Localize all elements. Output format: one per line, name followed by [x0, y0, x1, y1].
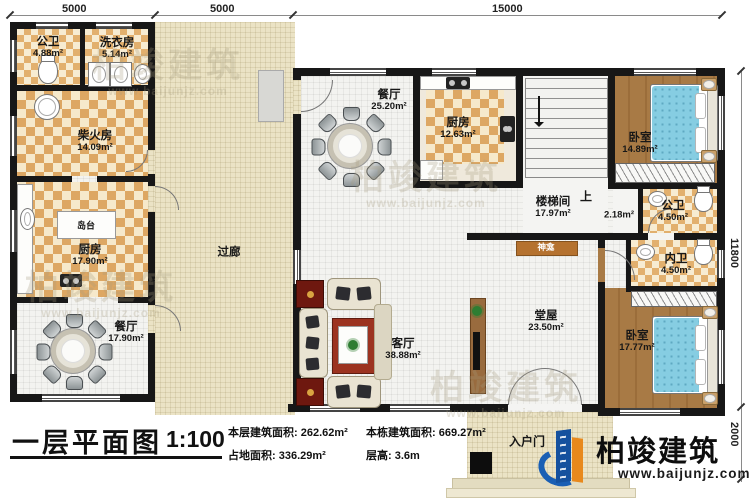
room-label-living: 客厅38.88m²	[385, 338, 420, 362]
window	[620, 408, 680, 416]
sink-icon	[636, 244, 655, 260]
toilet-icon	[694, 189, 713, 212]
pillow	[695, 93, 706, 119]
sink-icon	[134, 64, 151, 84]
side-table	[296, 280, 324, 308]
window	[390, 404, 450, 412]
dim-right-height: 11800	[728, 238, 740, 268]
round-table	[328, 124, 372, 168]
bed-quilt	[654, 318, 699, 392]
window	[293, 250, 301, 284]
round-table	[51, 329, 95, 373]
window	[717, 330, 725, 384]
chair	[343, 173, 360, 187]
island-label: 岛台	[77, 219, 95, 232]
room-label-bath3: 内卫4.50m²	[661, 253, 691, 277]
window	[96, 22, 132, 29]
stair-arrow-line	[538, 96, 540, 124]
stat-total-area: 本栋建筑面积: 669.27m²	[366, 424, 486, 440]
room-label-kitchen-main: 厨房12.63m²	[440, 117, 475, 141]
cushion	[335, 286, 350, 301]
toilet-icon	[38, 58, 58, 84]
room-label-laundry: 洗衣房5.14m²	[100, 37, 135, 61]
dimension-line-right	[741, 70, 742, 482]
title-underline	[10, 456, 222, 459]
room-label-stair: 楼梯间17.97m²	[535, 196, 570, 220]
room-kitchen-left-floor	[17, 182, 148, 297]
room-label-firewood: 柴火房14.09m²	[77, 130, 112, 154]
wall	[413, 181, 523, 188]
stairs-up-label: 上	[580, 188, 592, 205]
porch-column	[470, 452, 492, 474]
door-gap	[598, 248, 605, 282]
dimension-tick	[718, 11, 726, 19]
sofa	[327, 278, 381, 310]
floor-plan-canvas: 公卫4.88m² 洗衣房5.14m² 柴火房14.09m² 厨房17.90m² …	[0, 0, 750, 499]
door-gap	[148, 186, 155, 212]
cushion	[305, 315, 320, 329]
wardrobe	[615, 163, 715, 183]
chair	[36, 344, 50, 361]
tv-icon	[473, 332, 480, 370]
wall	[467, 233, 725, 240]
stove-icon	[500, 116, 515, 142]
window	[42, 394, 120, 402]
nightstand	[702, 306, 718, 319]
washing-machine-icon	[88, 62, 110, 87]
wall	[10, 85, 155, 91]
room-label-bath2: 公卫4.50m²	[658, 200, 688, 224]
room-label-bedroom1: 卧室14.89m²	[622, 132, 657, 156]
entry-door-gap	[508, 404, 582, 412]
kitchen-counter	[17, 184, 33, 294]
dim-top-mid: 5000	[210, 3, 234, 15]
room-label-bedroom2: 卧室17.77m²	[619, 330, 654, 354]
window	[36, 22, 68, 29]
room-label-kitchen-left: 厨房17.90m²	[72, 244, 107, 268]
logo-site: www.baijunjz.com	[618, 466, 750, 481]
stove-icon	[446, 77, 470, 89]
plan-title: 一层平面图	[12, 421, 162, 460]
washing-machine-icon	[110, 62, 132, 87]
dim-top-left: 5000	[62, 3, 86, 15]
wall	[10, 176, 72, 182]
door-gap	[293, 80, 301, 114]
room-label-corridor: 过廊	[218, 246, 241, 259]
sofa	[299, 308, 328, 378]
logo-tower-icon	[572, 437, 583, 483]
window	[634, 68, 696, 76]
chair	[66, 314, 83, 328]
stair-arrow-head	[534, 122, 544, 132]
window	[432, 68, 476, 76]
window	[717, 250, 725, 278]
cushion	[305, 336, 319, 349]
bed	[652, 316, 718, 394]
wall	[638, 189, 643, 239]
chair	[377, 139, 391, 156]
dim-top-right: 15000	[492, 3, 523, 15]
wall	[118, 297, 155, 303]
plant-icon	[472, 306, 482, 316]
nightstand	[701, 78, 717, 91]
wall	[10, 297, 68, 303]
window	[330, 68, 386, 76]
window	[717, 96, 725, 150]
dimension-line-top	[10, 15, 722, 16]
sofa	[327, 376, 381, 408]
wall	[413, 76, 420, 188]
door-gap	[648, 233, 674, 240]
door-gap	[148, 150, 155, 174]
bed-quilt	[652, 86, 699, 160]
logo-tower-icon	[556, 429, 571, 483]
window	[10, 40, 17, 72]
plant-icon	[348, 340, 358, 350]
wardrobe	[631, 291, 717, 307]
window	[10, 330, 17, 374]
chair	[343, 107, 360, 121]
bed-headboard	[707, 317, 717, 393]
wall	[516, 76, 523, 188]
shrine-label: 神龛	[537, 241, 554, 253]
nightstand	[702, 392, 718, 405]
fridge-icon	[420, 160, 443, 180]
corridor-cabinet	[258, 70, 284, 122]
chair	[311, 139, 325, 156]
cushion	[356, 384, 371, 398]
plan-scale: 1:100	[166, 426, 225, 453]
room-label-dining-main: 餐厅25.20m²	[371, 89, 406, 113]
room-label-bath1: 公卫4.88m²	[33, 36, 63, 60]
cushion	[356, 286, 371, 300]
toilet-icon	[694, 242, 713, 265]
brand-logo: 柏竣建筑 www.baijunjz.com	[538, 428, 748, 494]
stove-icon	[60, 274, 82, 287]
window	[10, 116, 17, 156]
room-label-dining-left: 餐厅17.90m²	[108, 321, 143, 345]
stat-land-area: 占地面积: 336.29m²	[228, 447, 326, 463]
wall	[480, 404, 508, 412]
wall	[97, 176, 155, 182]
room-label-hall: 堂屋23.50m²	[528, 310, 563, 334]
cushion	[335, 384, 350, 399]
side-table	[296, 378, 324, 406]
room-label-closet: 2.18m²	[604, 211, 634, 222]
chair	[66, 376, 83, 390]
cushion	[306, 357, 320, 370]
wall	[80, 22, 85, 88]
window	[10, 210, 17, 252]
wall	[608, 76, 615, 188]
logo-name: 柏竣建筑	[596, 428, 720, 470]
sink-icon	[20, 208, 35, 230]
stat-floor-height: 层高: 3.6m	[366, 447, 420, 463]
stove-pot-icon	[34, 94, 60, 120]
door-gap	[148, 305, 155, 333]
stat-floor-area: 本层建筑面积: 262.62m²	[228, 424, 348, 440]
pillow	[695, 325, 706, 351]
pillow	[695, 359, 706, 385]
nightstand	[701, 150, 717, 163]
chair	[98, 344, 112, 361]
